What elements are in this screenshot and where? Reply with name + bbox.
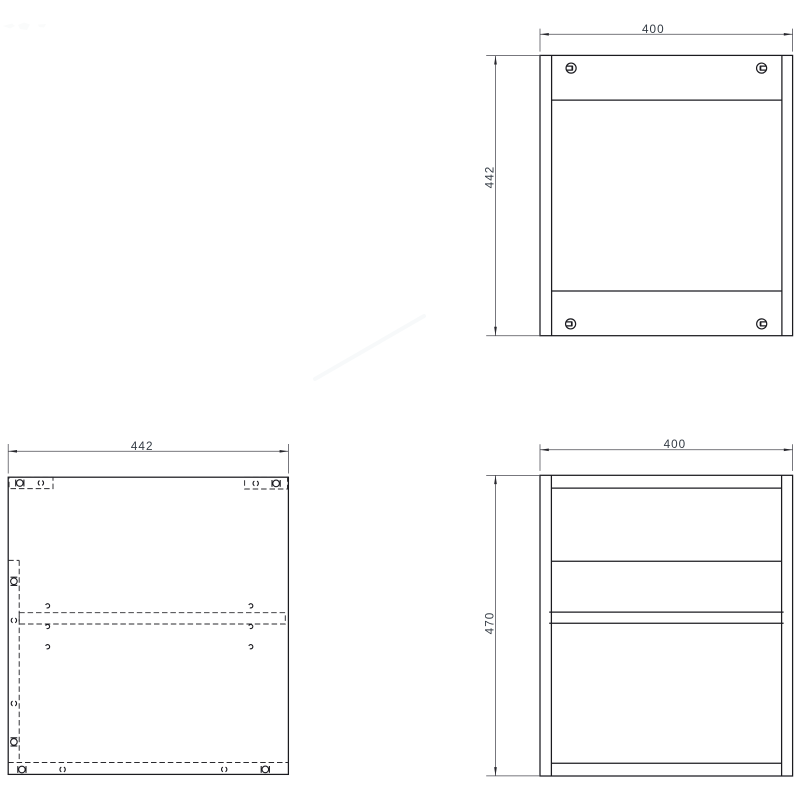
svg-text:442: 442 (484, 166, 497, 189)
svg-text:442: 442 (131, 440, 154, 453)
svg-text:470: 470 (484, 612, 497, 635)
svg-text:400: 400 (642, 23, 665, 36)
svg-text:400: 400 (664, 438, 687, 451)
